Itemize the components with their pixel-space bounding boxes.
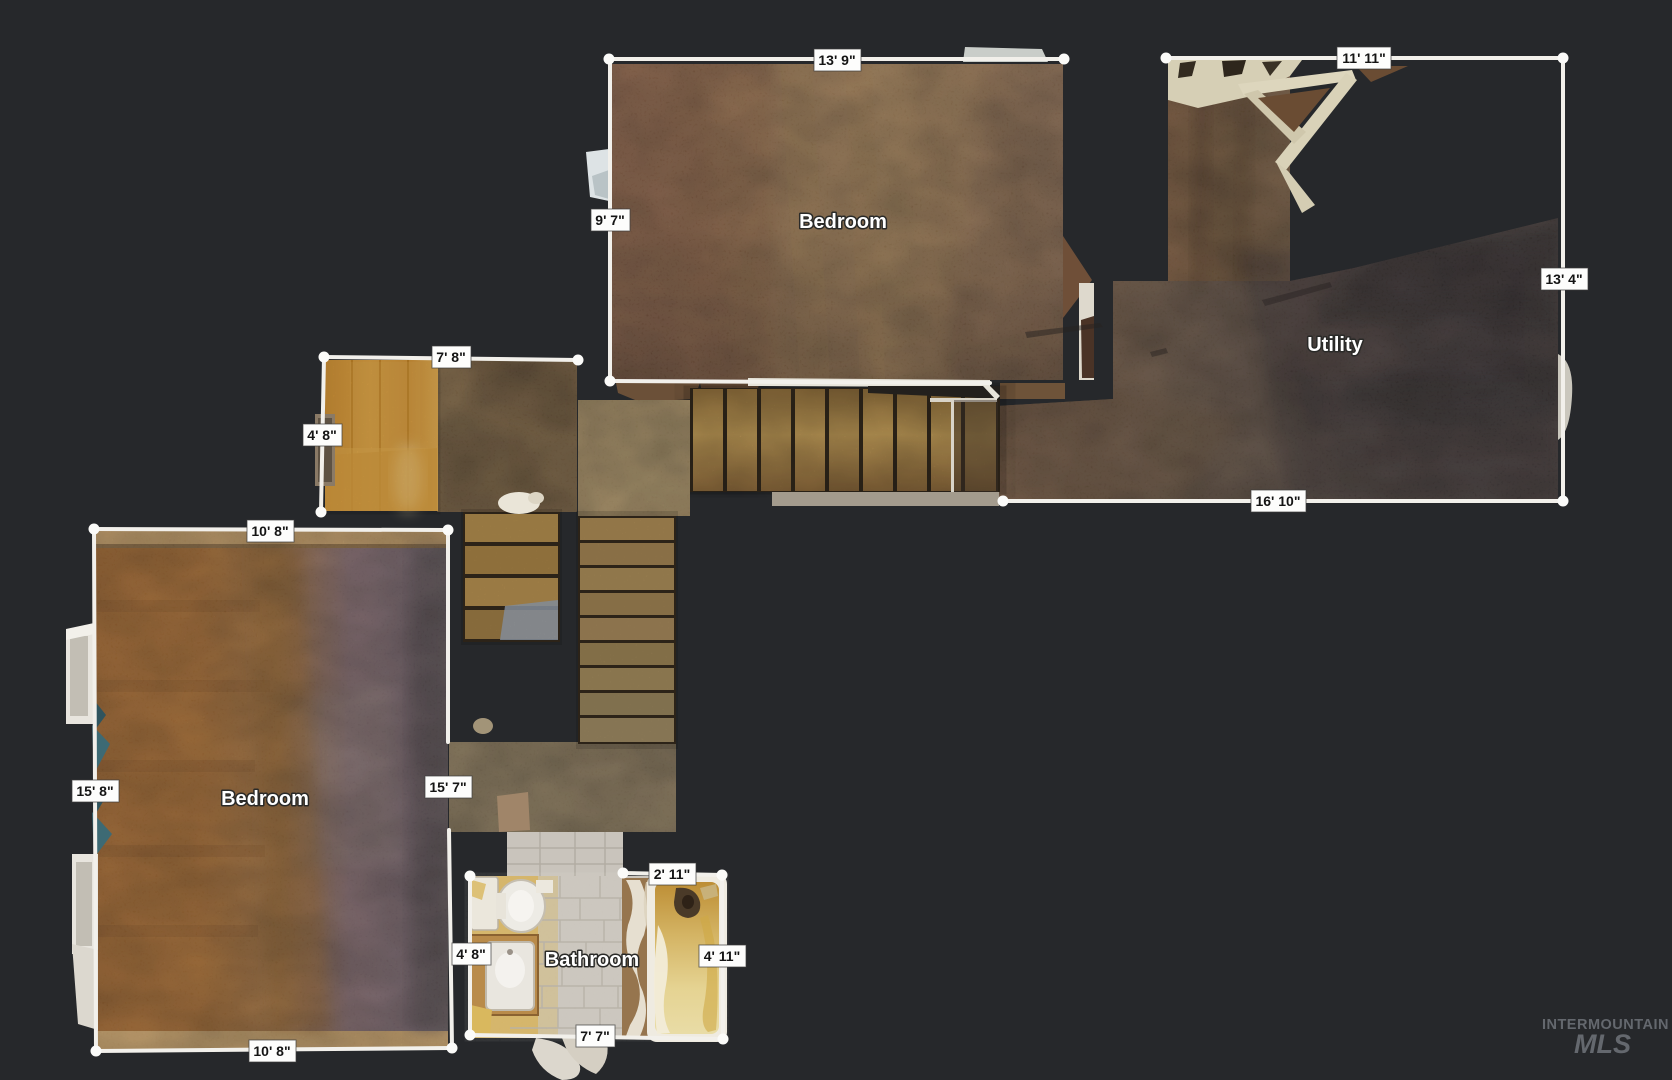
svg-text:11' 11": 11' 11" (1342, 50, 1385, 66)
svg-text:4' 8": 4' 8" (456, 946, 485, 962)
svg-text:13' 4": 13' 4" (1545, 271, 1582, 287)
svg-text:Bathroom: Bathroom (545, 949, 639, 971)
svg-text:13' 9": 13' 9" (818, 52, 855, 68)
svg-text:MLS: MLS (1574, 1029, 1631, 1059)
svg-text:7' 8": 7' 8" (436, 349, 465, 365)
svg-text:9' 7": 9' 7" (595, 212, 624, 228)
svg-text:16' 10": 16' 10" (1255, 493, 1300, 509)
svg-text:4' 8": 4' 8" (307, 427, 336, 443)
svg-text:10' 8": 10' 8" (253, 1043, 290, 1059)
svg-text:15' 7": 15' 7" (429, 779, 466, 795)
svg-text:10' 8": 10' 8" (251, 523, 288, 539)
svg-text:4' 11": 4' 11" (704, 948, 740, 964)
svg-text:Utility: Utility (1307, 334, 1363, 356)
svg-text:2' 11": 2' 11" (654, 866, 690, 882)
svg-text:7' 7": 7' 7" (580, 1028, 609, 1044)
svg-text:Bedroom: Bedroom (799, 211, 887, 233)
svg-text:Bedroom: Bedroom (221, 788, 309, 810)
svg-text:15' 8": 15' 8" (76, 783, 113, 799)
